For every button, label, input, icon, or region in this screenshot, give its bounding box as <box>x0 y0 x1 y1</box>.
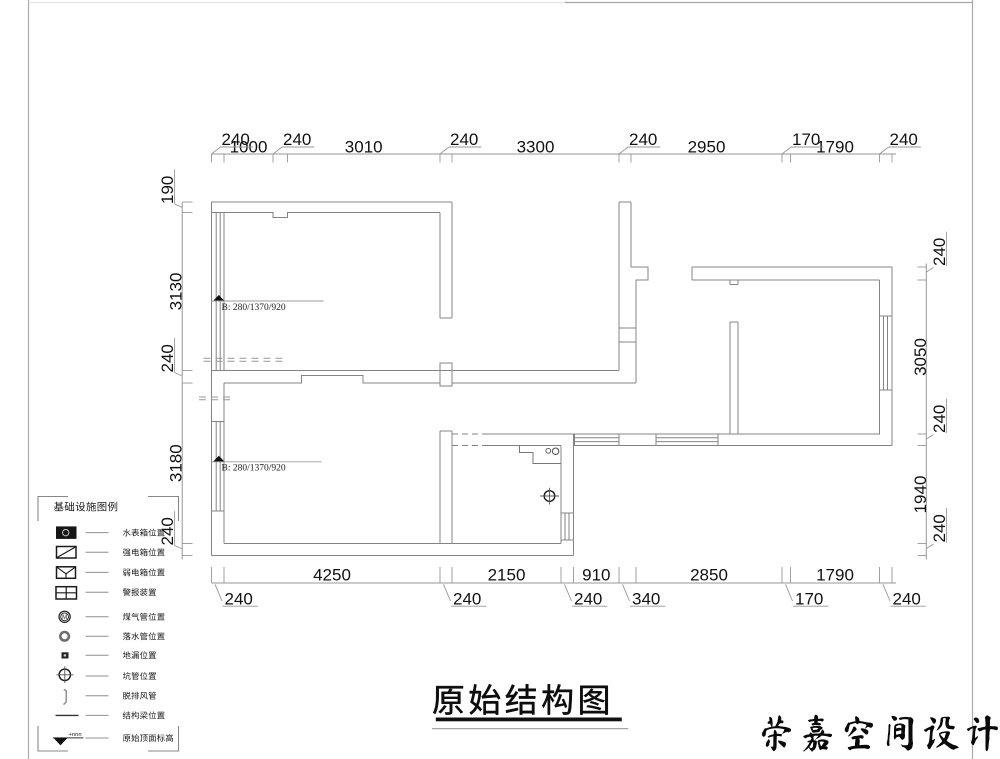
svg-text:240: 240 <box>450 130 478 149</box>
svg-text:240: 240 <box>930 405 949 433</box>
svg-text:1940: 1940 <box>911 476 930 514</box>
svg-text:240: 240 <box>893 590 921 609</box>
svg-text:240: 240 <box>222 130 250 149</box>
svg-text:3300: 3300 <box>517 137 555 156</box>
svg-text:4250: 4250 <box>313 565 351 584</box>
svg-text:170: 170 <box>795 590 823 609</box>
svg-text:3050: 3050 <box>911 338 930 376</box>
svg-text:2850: 2850 <box>690 565 728 584</box>
svg-text:M: M <box>62 615 67 621</box>
svg-text:910: 910 <box>582 565 610 584</box>
svg-text:240: 240 <box>453 590 481 609</box>
svg-text:2150: 2150 <box>488 565 526 584</box>
svg-text:240: 240 <box>574 590 602 609</box>
svg-text:240: 240 <box>930 238 949 266</box>
svg-text:170: 170 <box>792 130 820 149</box>
svg-text:3130: 3130 <box>167 273 186 311</box>
svg-text:3180: 3180 <box>167 444 186 482</box>
svg-text:240: 240 <box>225 590 253 609</box>
svg-text:2950: 2950 <box>688 137 726 156</box>
svg-text:240: 240 <box>158 344 177 372</box>
svg-text:240: 240 <box>930 514 949 542</box>
svg-text:1790: 1790 <box>816 565 854 584</box>
svg-text:240: 240 <box>890 130 918 149</box>
svg-text:B: 280/1370/920: B: 280/1370/920 <box>222 303 286 313</box>
svg-text:+nnn: +nnn <box>69 732 82 738</box>
svg-text:240: 240 <box>629 130 657 149</box>
svg-text:340: 340 <box>632 590 660 609</box>
svg-text:190: 190 <box>158 176 177 204</box>
svg-text:240: 240 <box>283 130 311 149</box>
svg-text:B: 280/1370/920: B: 280/1370/920 <box>222 464 286 474</box>
svg-text:3010: 3010 <box>345 137 383 156</box>
